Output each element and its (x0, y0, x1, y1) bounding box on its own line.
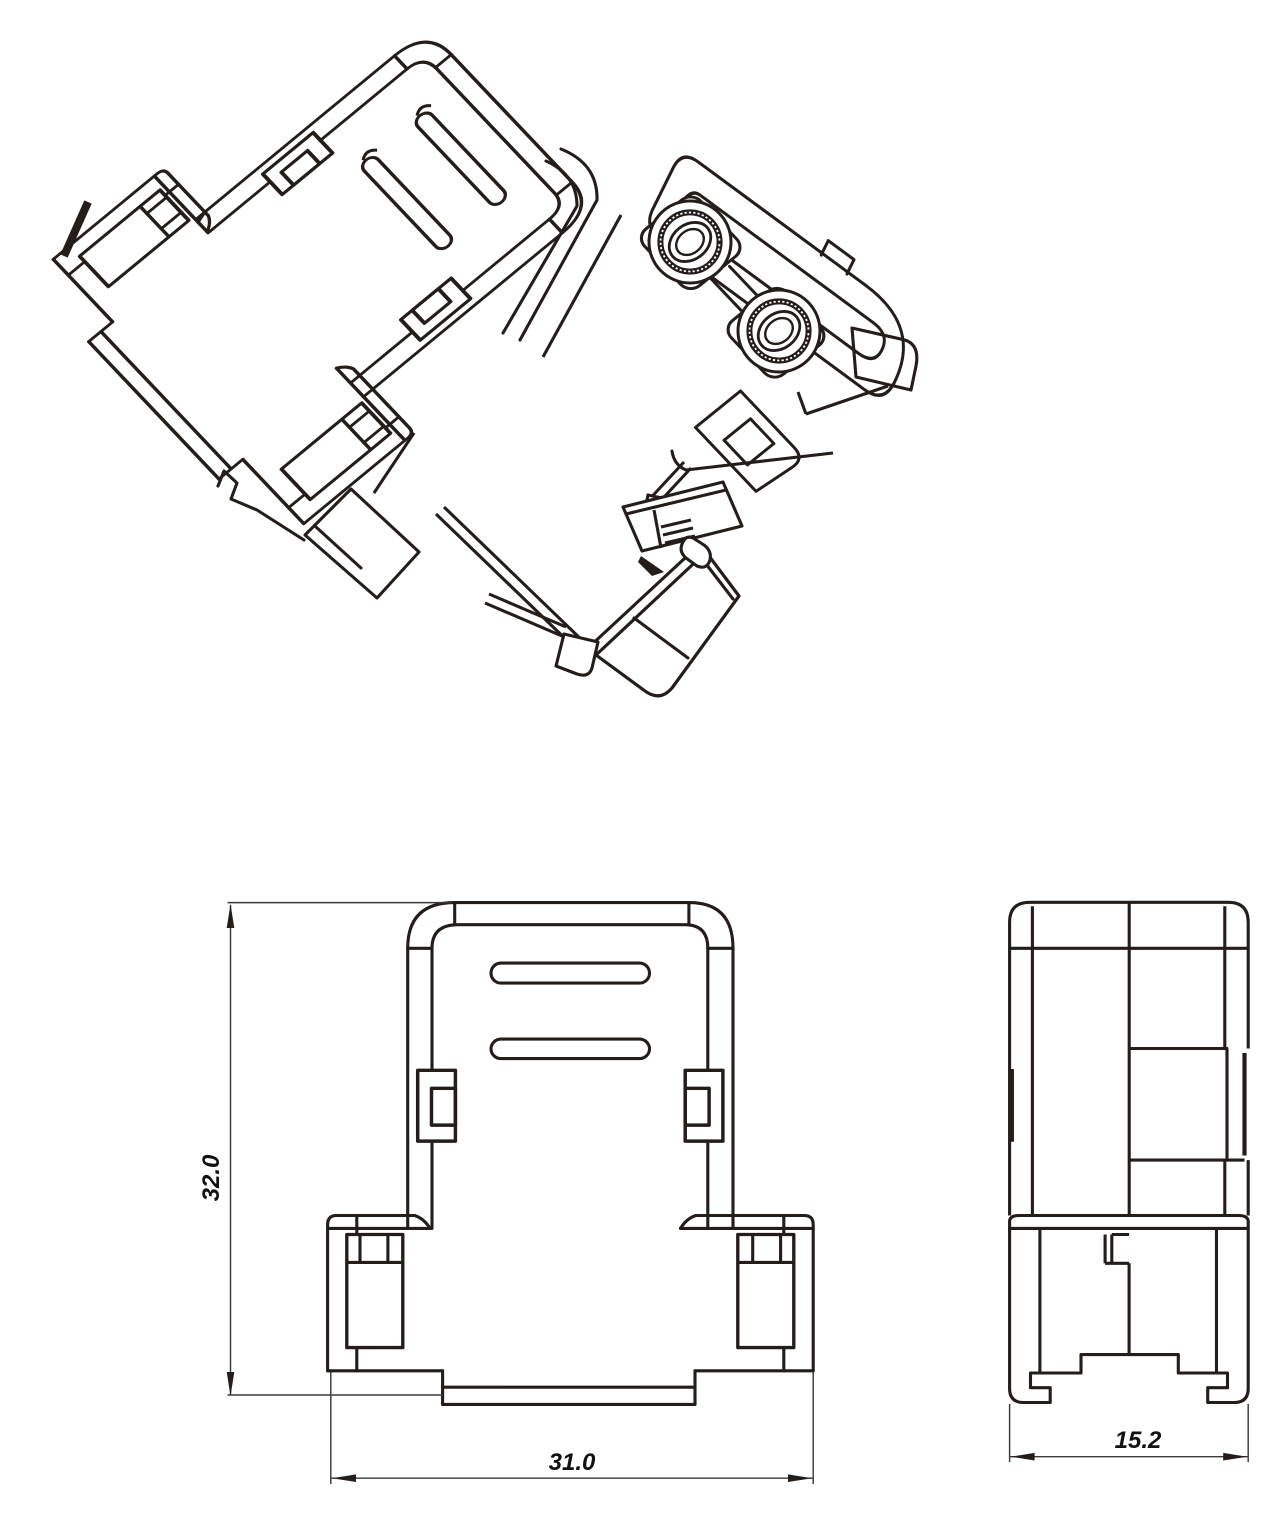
svg-text:15.2: 15.2 (1115, 1427, 1162, 1454)
svg-text:32.0: 32.0 (198, 1154, 225, 1201)
svg-text:31.0: 31.0 (549, 1449, 596, 1476)
